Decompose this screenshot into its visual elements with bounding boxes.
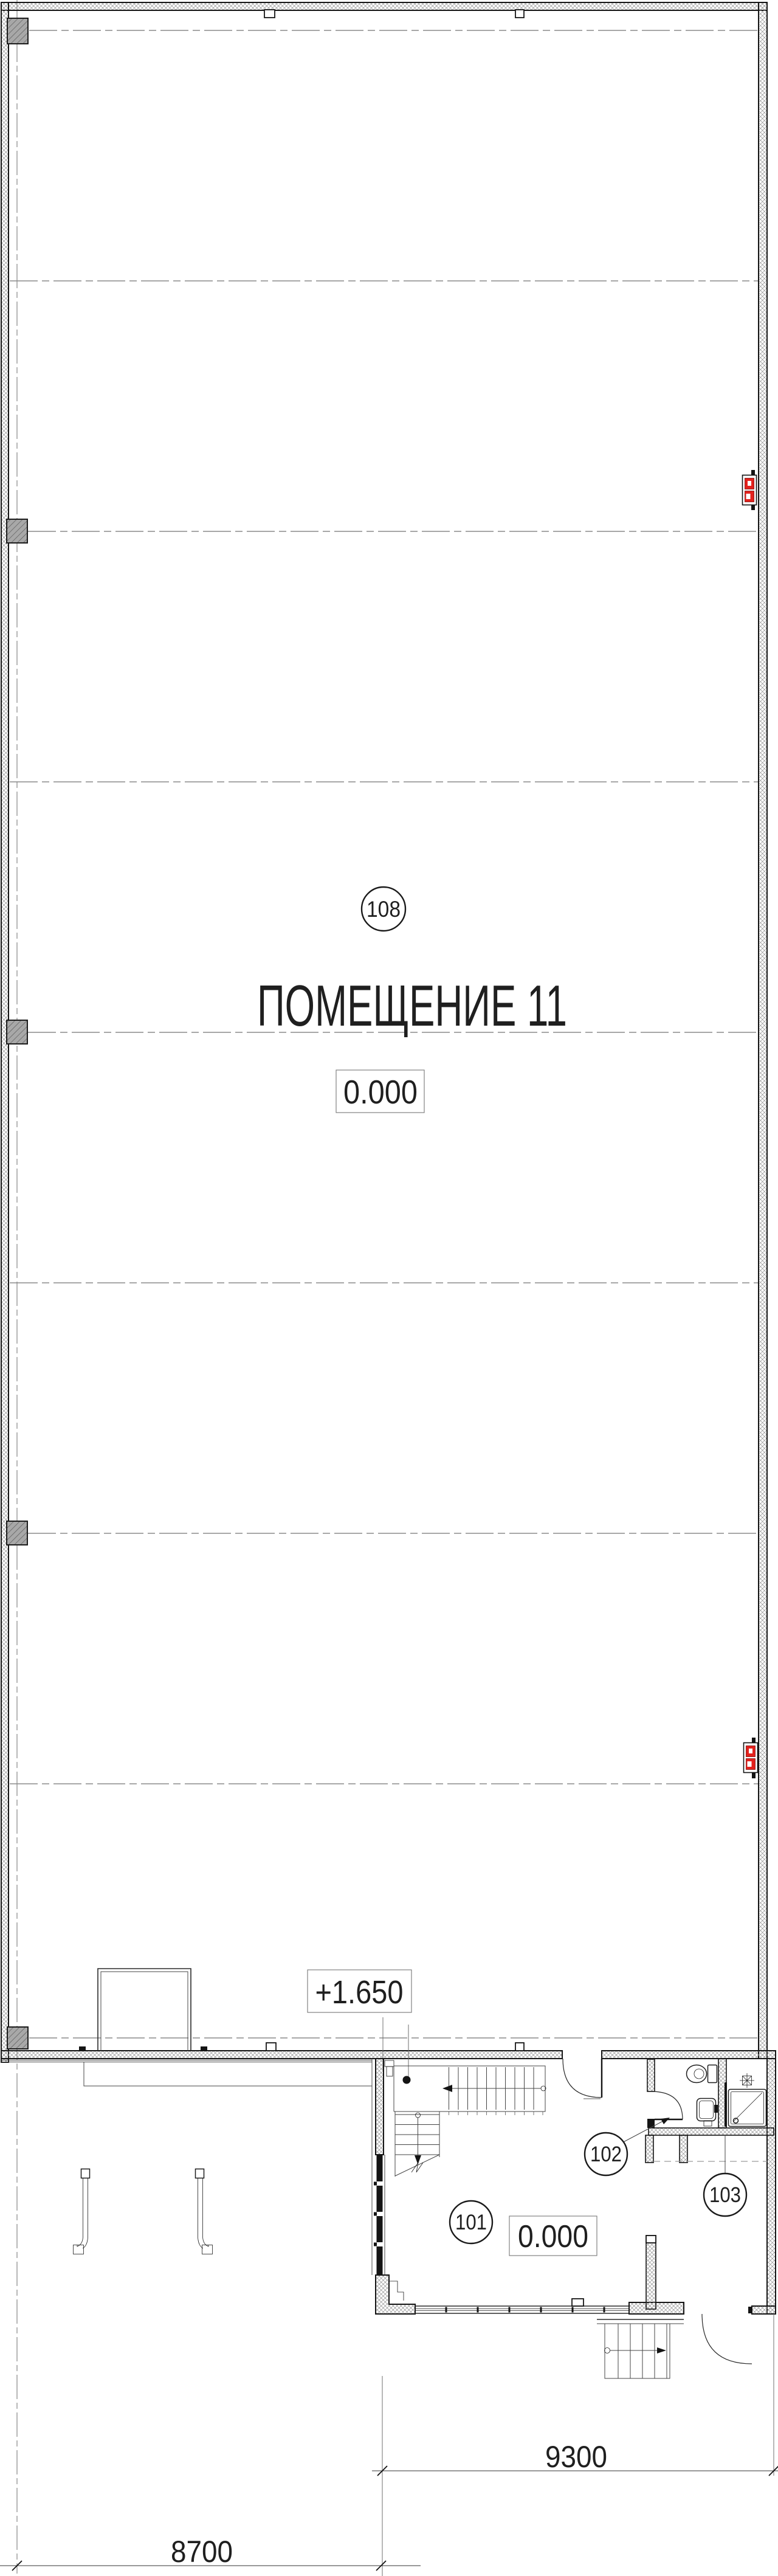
partition-101-east <box>646 2236 656 2309</box>
wall-bottom-east <box>602 2051 776 2059</box>
pilaster <box>7 2027 28 2049</box>
wall-wc-south <box>649 2128 774 2135</box>
room-number-108: 108 <box>367 897 401 922</box>
wall-bottom-west <box>1 2051 562 2059</box>
annex: 101 102 103 0.000 <box>374 2017 776 2378</box>
dimensions: 9300 8700 <box>0 2314 778 2576</box>
wall-ladder-icon <box>74 2046 90 2254</box>
wall-top <box>1 2 767 10</box>
sink-icon <box>697 2099 718 2127</box>
dimension-8700-value: 8700 <box>171 2535 233 2569</box>
fire-hose-cabinet-icon <box>744 1738 758 1778</box>
dimension-9300: 9300 <box>372 2440 778 2476</box>
annex-left-glazing <box>374 2155 385 2275</box>
duct-line <box>725 2082 727 2127</box>
steel-column <box>403 2076 411 2084</box>
level-value-annex: 0.000 <box>518 2219 588 2254</box>
dimension-8700: 8700 <box>0 2535 421 2571</box>
exterior-steps <box>597 2319 684 2378</box>
main-hall: 108 ПОМЕЩЕНИЕ 11 0.000 +1.650 <box>1 0 776 2574</box>
fire-hose-cabinet-icon <box>743 470 757 510</box>
annex-wall-right <box>767 2059 776 2314</box>
pilaster <box>7 1521 27 1545</box>
annex-wall-bottom-corner <box>752 2306 776 2314</box>
dimension-9300-value: 9300 <box>545 2440 607 2474</box>
room-title: ПОМЕЩЕНИЕ 11 <box>257 973 567 1038</box>
floor-drain-icon <box>740 2073 754 2088</box>
entrance-door <box>702 2307 752 2364</box>
pilaster <box>7 1020 27 1044</box>
annex-wall-bottom-solid <box>629 2302 684 2314</box>
dock-platform <box>84 1969 372 2275</box>
floor-plan-page: 108 ПОМЕЩЕНИЕ 11 0.000 +1.650 <box>0 0 778 2576</box>
floor-plan-drawing: 108 ПОМЕЩЕНИЕ 11 0.000 +1.650 <box>0 0 778 2576</box>
wall-ladder-icon <box>196 2046 213 2254</box>
wc-door <box>651 2091 683 2119</box>
annex-bottom-glazing <box>415 2306 629 2313</box>
room-number-101: 101 <box>455 2211 487 2234</box>
wall-right <box>759 2 767 2059</box>
level-value-main: 0.000 <box>343 1073 418 1111</box>
toilet-icon <box>687 2065 717 2083</box>
room-number-102: 102 <box>590 2143 622 2166</box>
stairs <box>385 2060 546 2177</box>
level-value-dock: +1.650 <box>315 1974 404 2011</box>
pilaster <box>7 18 28 44</box>
stair-comb-ticks <box>449 2112 543 2115</box>
shower-tray-icon <box>729 2090 766 2127</box>
room-number-103: 103 <box>709 2183 741 2207</box>
hall-door <box>563 2059 602 2099</box>
annex-wall-left <box>376 2059 384 2155</box>
pilaster <box>7 519 27 543</box>
